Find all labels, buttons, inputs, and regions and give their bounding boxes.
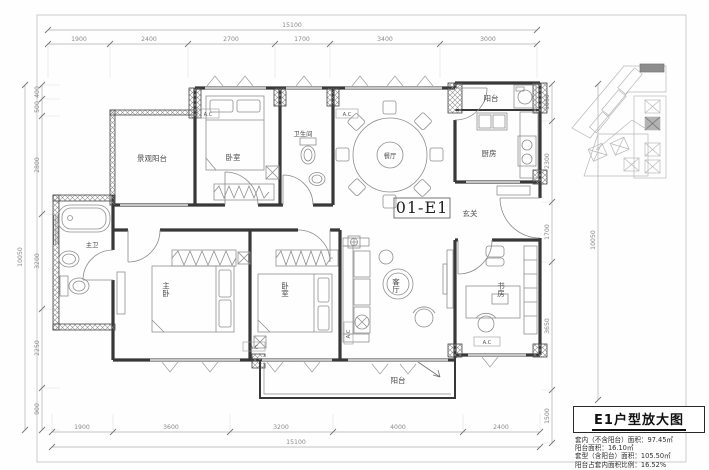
room-labels: 景观阳台 卧室 卫生间 餐厅 阳台 厨房 玄关 客厅 书房 主卧 卧室 主卫 阳…	[86, 93, 506, 385]
label-view-balcony: 景观阳台	[137, 153, 167, 163]
label-living-room: 客厅	[391, 277, 400, 294]
label-dining: 餐厅	[384, 151, 397, 160]
floorplan-drawing: 15100 1900 2400 2700 1700 3400 3000 1510…	[0, 0, 709, 470]
dim-top-1: 1900	[71, 36, 87, 43]
label-master-bedroom: 主卧	[161, 281, 170, 299]
ac-tag-1: A.C	[204, 112, 213, 118]
label-bathroom: 卫生间	[294, 129, 313, 138]
area-info: 套内（不含阳台）面积：97.45㎡ 阳台面积：16.10㎡ 套型（含阳台）面积：…	[575, 436, 707, 469]
label-kitchen: 厨房	[482, 148, 497, 158]
dim-left-1: 400	[34, 86, 41, 98]
label-foyer: 玄关	[463, 208, 478, 218]
dim-bottom-5: 2400	[493, 424, 509, 431]
dim-top-total: 15100	[282, 22, 302, 29]
dim-right-3: 1700	[544, 224, 551, 240]
dim-bottom-total: 15100	[286, 439, 306, 446]
label-master-bath: 主卫	[86, 240, 99, 249]
dim-top-4: 1700	[294, 36, 310, 43]
dim-right-5: 1500	[544, 408, 551, 424]
dim-top-3: 2700	[223, 36, 239, 43]
label-balcony-bottom: 阳台	[391, 375, 406, 385]
dim-right-2: 2300	[544, 153, 551, 169]
dim-left-total: 10050	[17, 247, 24, 267]
floorplan-sheet: 15100 1900 2400 2700 1700 3400 3000 1510…	[0, 0, 709, 470]
dim-top-5: 3400	[377, 36, 393, 43]
dim-top-6: 3000	[480, 36, 496, 43]
dim-right-4: 3650	[544, 318, 551, 334]
ac-tag-3: A.C	[250, 345, 259, 351]
dim-left-4: 3200	[34, 253, 41, 269]
unit-label: 01-E1	[396, 198, 449, 217]
window-swing-marks	[162, 76, 498, 374]
area-info-line-4: 阳台占套内面积比例：16.52%	[575, 461, 707, 469]
walls	[113, 83, 540, 360]
label-bedroom-top: 卧室	[226, 152, 241, 162]
dim-bottom-4: 4000	[390, 424, 406, 431]
balcony-parapet	[260, 358, 455, 398]
dim-top-2: 2400	[141, 36, 157, 43]
dim-right-total: 10050	[590, 230, 597, 250]
dim-left-3: 2800	[34, 157, 41, 173]
key-plan	[572, 64, 666, 178]
dim-bottom-1: 1900	[74, 424, 90, 431]
dim-bottom-3: 3200	[273, 424, 289, 431]
dim-left-5: 2250	[34, 340, 41, 356]
sheet-border	[37, 15, 686, 462]
area-info-line-1: 套内（不含阳台）面积：97.45㎡	[575, 436, 707, 444]
unit-label-group: 01-E1	[394, 198, 450, 218]
hatched-walls	[53, 83, 547, 368]
dim-bottom-2: 3600	[163, 424, 179, 431]
title-block: E1户型放大图	[573, 406, 705, 433]
ac-tag-5: A.C	[483, 340, 492, 346]
ac-tag-4: A.C	[346, 329, 352, 338]
ac-tag-2: A.C	[343, 112, 352, 118]
label-balcony-top: 阳台	[484, 93, 499, 103]
plan-title: E1户型放大图	[592, 409, 686, 431]
area-info-line-3: 套型（含阳台）面积：105.50㎡	[575, 452, 707, 460]
dim-left-2: 500	[34, 101, 41, 113]
dim-left-6: 900	[34, 403, 41, 415]
label-bedroom-2: 卧室	[280, 282, 289, 298]
label-study: 书房	[496, 281, 505, 299]
